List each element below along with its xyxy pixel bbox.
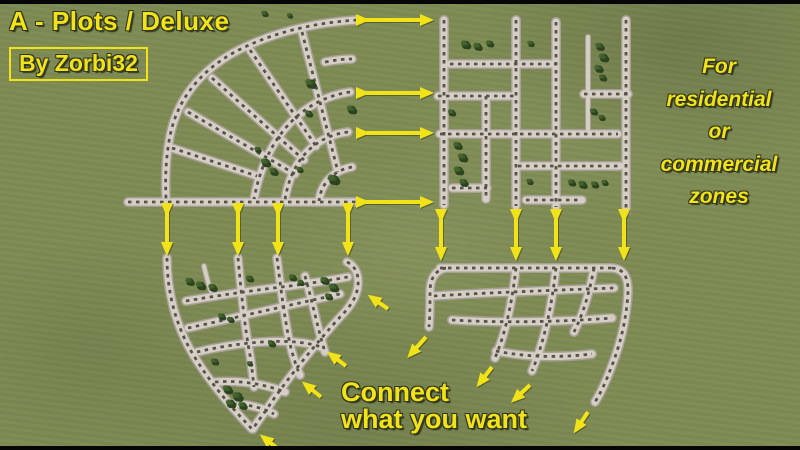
letterbox-top-bar (0, 0, 800, 4)
page-title: A - Plots / Deluxe (9, 6, 229, 37)
road-cluster-top-left-fan (128, 20, 357, 202)
connect-caption: Connect what you want (341, 379, 527, 433)
zones-note-line: commercial (646, 149, 792, 182)
road-cluster-bottom-left-fan (167, 258, 358, 429)
connect-caption-line: what you want (341, 406, 527, 433)
connection-arrow (330, 354, 346, 366)
zones-note: For residential or commercial zones (646, 51, 792, 214)
connection-arrow (305, 384, 321, 397)
connection-arrow (371, 297, 388, 309)
zones-note-line: or (646, 116, 792, 149)
author-badge: By Zorbi32 (9, 47, 148, 81)
zones-note-line: For (646, 51, 792, 84)
connection-arrow (410, 337, 426, 355)
connect-caption-line: Connect (341, 379, 527, 406)
zones-note-line: zones (646, 181, 792, 214)
connection-arrow (576, 412, 588, 430)
zones-note-line: residential (646, 84, 792, 117)
letterbox-bottom-bar (0, 446, 800, 450)
mod-promo-screenshot: A - Plots / Deluxe By Zorbi32 For reside… (0, 0, 800, 450)
